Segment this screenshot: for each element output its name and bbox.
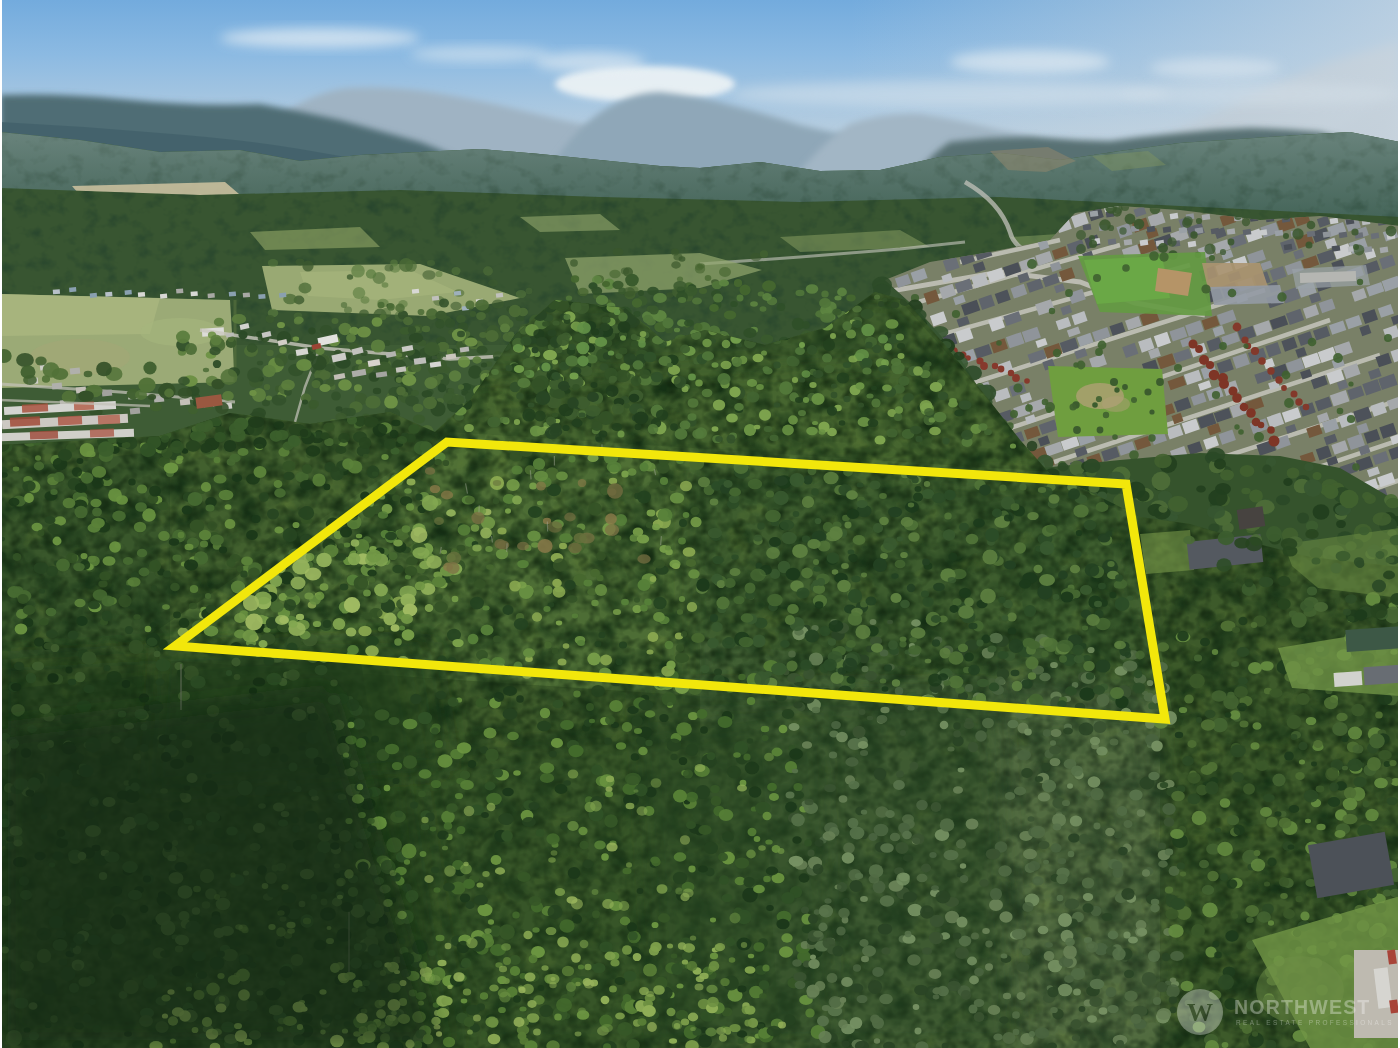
svg-text:NORTHWEST: NORTHWEST (1234, 996, 1370, 1018)
svg-text:W: W (1187, 998, 1213, 1027)
svg-text:REAL ESTATE PROFESSIONALS: REAL ESTATE PROFESSIONALS (1236, 1019, 1394, 1026)
